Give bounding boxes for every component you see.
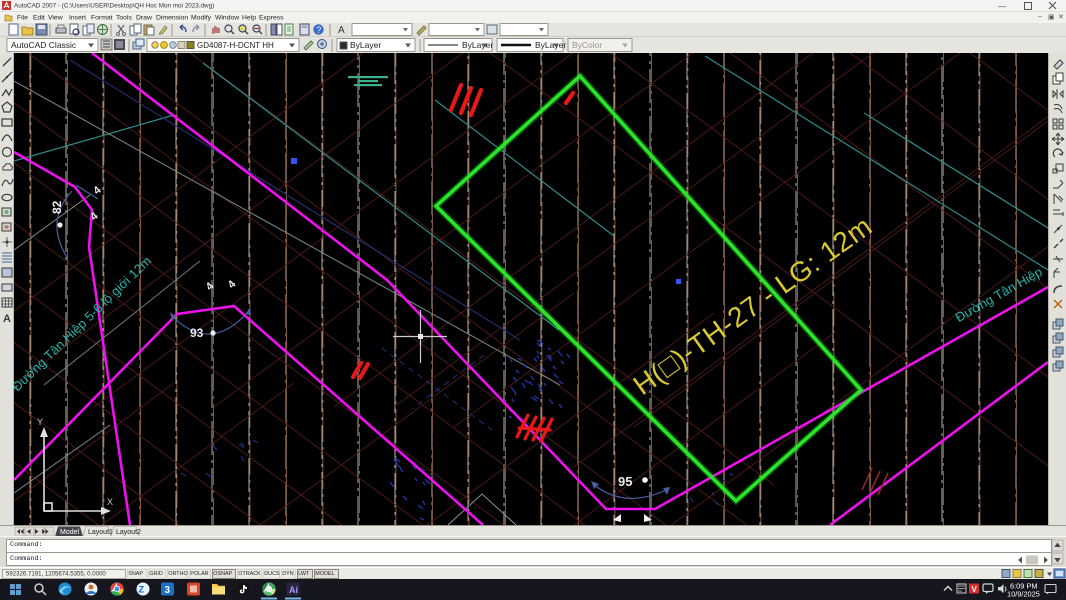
svg-text:?: ? [316, 25, 321, 35]
svg-text:3: 3 [165, 585, 171, 596]
svg-text:Ai: Ai [289, 585, 298, 595]
svg-text:X: X [107, 497, 113, 507]
svg-text:95: 95 [618, 474, 632, 489]
svg-text:Y: Y [37, 417, 43, 427]
svg-text:A: A [338, 25, 345, 36]
svg-text:V: V [972, 585, 978, 594]
svg-text:GD4087-H-DCNT HH: GD4087-H-DCNT HH [197, 41, 274, 50]
svg-text:82: 82 [50, 200, 64, 214]
svg-text:Layout2: Layout2 [116, 529, 141, 536]
svg-text:AutoCAD Classic: AutoCAD Classic [11, 40, 77, 50]
svg-text:H(□)-TH-27 - LG: 12m: H(□)-TH-27 - LG: 12m [628, 210, 878, 401]
svg-text:4: 4 [204, 280, 217, 293]
svg-text:ByLayer: ByLayer [535, 40, 566, 50]
svg-text:A: A [3, 313, 11, 325]
svg-text:ByColor: ByColor [572, 40, 602, 50]
svg-text:ByLayer: ByLayer [350, 40, 381, 50]
svg-text:Model: Model [60, 529, 80, 536]
svg-text:10/9/2025: 10/9/2025 [1007, 590, 1040, 599]
svg-text:Layout1: Layout1 [88, 529, 113, 536]
svg-text:4: 4 [226, 278, 239, 291]
svg-text:Z: Z [139, 585, 145, 595]
svg-text:ByLayer: ByLayer [462, 40, 493, 50]
svg-text:93: 93 [190, 326, 204, 340]
